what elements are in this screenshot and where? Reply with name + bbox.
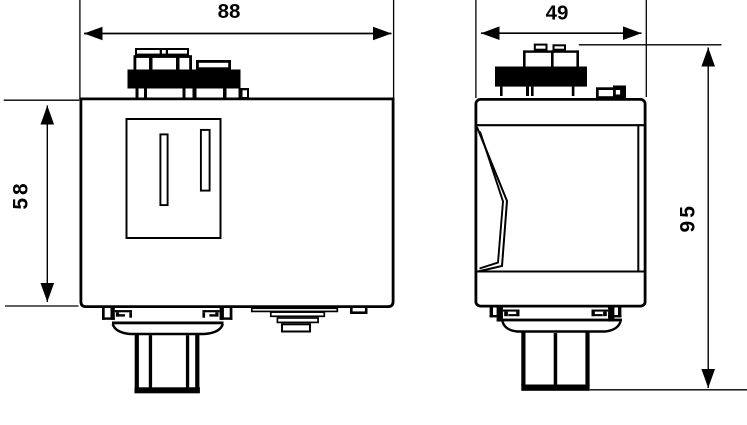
svg-text:88: 88 [218,0,241,23]
svg-text:95: 95 [676,203,699,232]
svg-text:49: 49 [546,1,569,24]
svg-text:58: 58 [10,180,33,209]
